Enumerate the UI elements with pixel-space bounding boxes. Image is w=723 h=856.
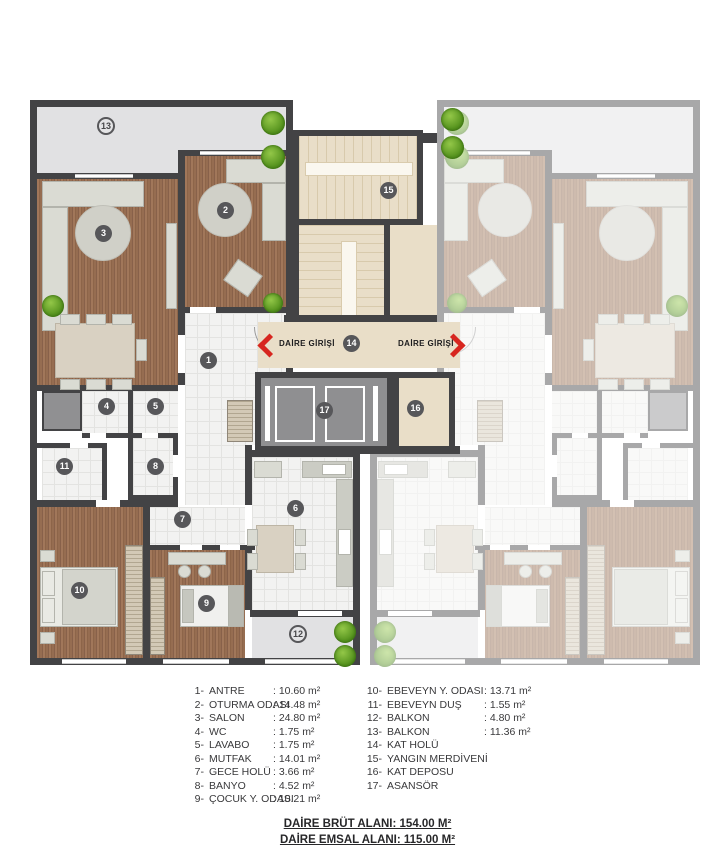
blanket [614,569,668,625]
closet [227,400,253,442]
chair [583,339,594,361]
plant-icon [447,293,467,313]
floor-plan: 1 2 3 4 5 6 7 8 9 10 11 12 13 [0,0,723,680]
shaft [648,391,688,431]
wardrobe [125,545,143,655]
room-badge-15: 15 [380,182,397,199]
chair [178,565,191,578]
room-badge-16: 16 [407,400,424,417]
chair [598,379,618,390]
legend-item: 3-SALON: 24.80 m² [186,712,361,726]
nightstand [675,550,690,562]
chair [247,529,258,546]
tv-unit [553,223,564,309]
wardrobe [587,545,605,655]
nightstand [40,632,55,644]
room-badge-17: 17 [316,402,333,419]
dining-table [55,323,135,378]
room-badge-5: 5 [147,398,164,415]
corridor-antre-ext [185,445,245,505]
plant-icon [334,645,356,667]
legend-item: 11-EBEVEYN DUŞ: 1.55 m² [364,699,574,713]
chair [539,565,552,578]
fridge [254,461,282,478]
room-gece-holu [485,507,587,545]
corridor-antre-ext [485,445,545,505]
chair [86,314,106,325]
room-badge-1: 1 [200,352,217,369]
plant-icon [441,108,464,131]
room-ebeveyn-dus [42,448,102,500]
chair [247,553,258,570]
room-badge-14: 14 [343,335,360,352]
plant-icon [374,645,396,667]
rug [599,205,655,261]
desk [168,552,226,565]
legend-item: 9-ÇOCUK Y. ODASI: 10.21 m² [186,793,361,807]
chair [519,565,532,578]
chair [424,529,435,546]
chair [295,529,306,546]
chair [650,379,670,390]
room-badge-12: 12 [289,625,307,643]
total-emsal: DAİRE EMSAL ALANI: 115.00 M² [225,833,510,849]
legend-item: 2-OTURMA ODASI: 14.48 m² [186,699,361,713]
legend-item: 7-GECE HOLÜ: 3.66 m² [186,766,361,780]
plant-icon [261,111,285,135]
storage-room [393,372,455,453]
room-badge-2: 2 [217,202,234,219]
room-badge-8: 8 [147,458,164,475]
legend-item: 6-MUTFAK: 14.01 m² [186,753,361,767]
legend-item: 16-KAT DEPOSU [364,766,574,780]
hob [384,464,408,475]
plant-icon [261,145,285,169]
room-badge-7: 7 [174,511,191,528]
area-totals: DAİRE BRÜT ALANI: 154.00 M² DAİRE EMSAL … [225,817,510,848]
legend-item: 10-EBEVEYN Y. ODASI: 13.71 m² [364,685,574,699]
sofa [444,183,468,241]
sofa [42,181,144,207]
floor-plan-page: 1 2 3 4 5 6 7 8 9 10 11 12 13 [0,0,723,856]
legend-item: 1-ANTRE: 10.60 m² [186,685,361,699]
chair [112,379,132,390]
bed-end [228,585,244,627]
desk [504,552,562,565]
sink [379,529,392,555]
pillow [42,598,55,623]
chair [472,529,483,546]
legend-item: 14-KAT HOLÜ [364,739,574,753]
kitchen-table [436,525,474,573]
stair-hall [384,225,437,322]
room-badge-11: 11 [56,458,73,475]
sink [338,529,351,555]
chair [624,314,644,325]
room-badge-10: 10 [71,582,88,599]
dining-table [595,323,675,378]
room-badge-13: 13 [97,117,115,135]
plant-icon [666,295,688,317]
legend-column-1: 1-ANTRE: 10.60 m² 2-OTURMA ODASI: 14.48 … [186,685,361,807]
total-brut: DAİRE BRÜT ALANI: 154.00 M² [225,817,510,833]
pillow [675,571,688,596]
chair [472,553,483,570]
legend-item: 13-BALKON: 11.36 m² [364,726,574,740]
nightstand [675,632,690,644]
room-badge-9: 9 [198,595,215,612]
wardrobe [565,577,580,655]
legend-item: 8-BANYO: 4.52 m² [186,780,361,794]
plant-icon [441,136,464,159]
hob [322,464,346,475]
room-lavabo [552,391,597,433]
chair [650,314,670,325]
closet [477,400,503,442]
chair [624,379,644,390]
fridge [448,461,476,478]
pillow [182,589,194,623]
legend-item: 15-YANGIN MERDİVENİ [364,753,574,767]
stair-flight [293,225,384,322]
legend-column-2: 10-EBEVEYN Y. ODASI: 13.71 m² 11-EBEVEYN… [364,685,574,793]
chair [136,339,147,361]
legend-item: 5-LAVABO: 1.75 m² [186,739,361,753]
kitchen-table [256,525,294,573]
plant-icon [263,293,283,313]
chair [60,314,80,325]
plant-icon [42,295,64,317]
pillow [42,571,55,596]
nightstand [40,550,55,562]
bed-end [486,585,502,627]
room-badge-4: 4 [98,398,115,415]
legend-item: 4-WC: 1.75 m² [186,726,361,740]
room-ebeveyn-dus [628,448,688,500]
room-wc [602,391,648,433]
legend-item: 12-BALKON: 4.80 m² [364,712,574,726]
chair [112,314,132,325]
shaft [42,391,82,431]
chair [60,379,80,390]
legend-item: 17-ASANSÖR [364,780,574,794]
sofa [262,183,286,241]
plant-icon [374,621,396,643]
chair [598,314,618,325]
chair [295,553,306,570]
chair [86,379,106,390]
room-banyo [557,438,597,498]
chair [198,565,211,578]
tv-unit [166,223,177,309]
pillow [536,589,548,623]
sofa [586,181,688,207]
wardrobe [150,577,165,655]
room-badge-3: 3 [95,225,112,242]
entrance-label-left: DAİRE GİRİŞİ [279,339,335,349]
room-badge-6: 6 [287,500,304,517]
chair [424,553,435,570]
pillow [675,598,688,623]
rug [478,183,532,237]
plant-icon [334,621,356,643]
fire-stairs [293,130,423,225]
blanket [62,569,116,625]
room-gece-holu [143,507,245,545]
